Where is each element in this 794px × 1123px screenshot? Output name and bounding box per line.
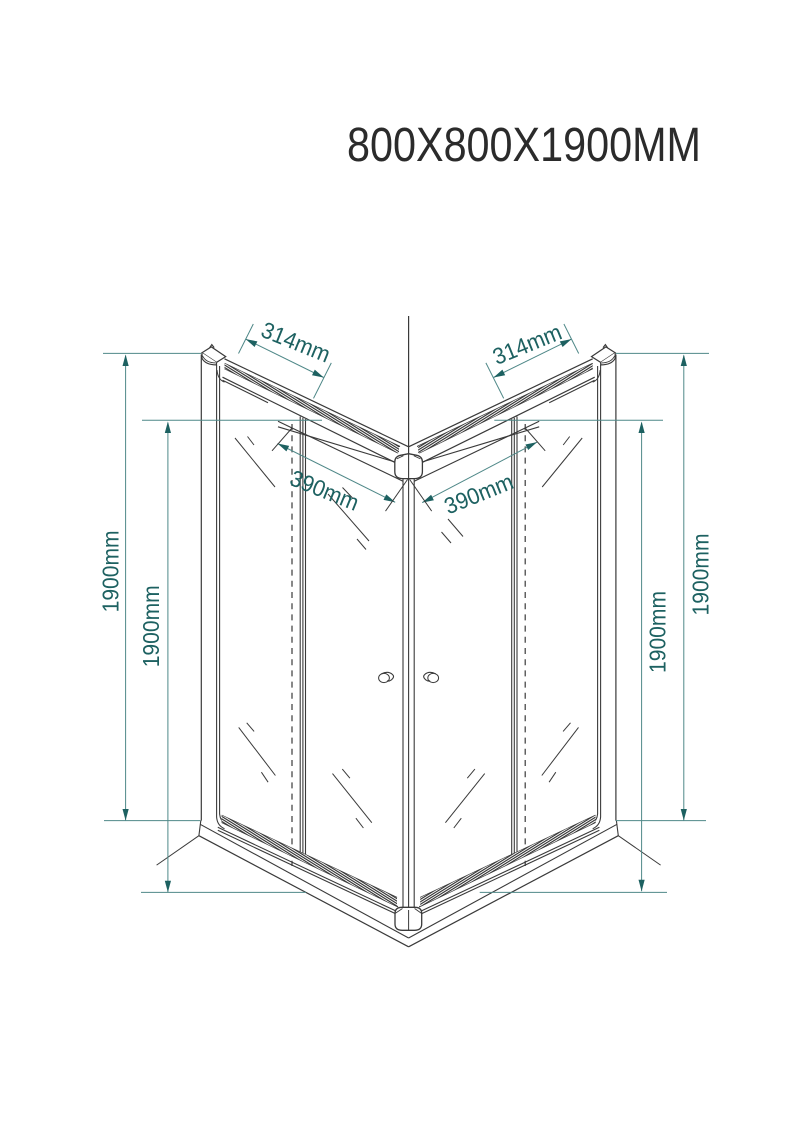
svg-text:1900mm: 1900mm	[97, 530, 123, 612]
svg-text:1900mm: 1900mm	[138, 585, 164, 667]
svg-text:1900mm: 1900mm	[645, 591, 671, 673]
svg-text:1900mm: 1900mm	[687, 534, 713, 616]
svg-text:800X800X1900MM: 800X800X1900MM	[347, 119, 701, 172]
